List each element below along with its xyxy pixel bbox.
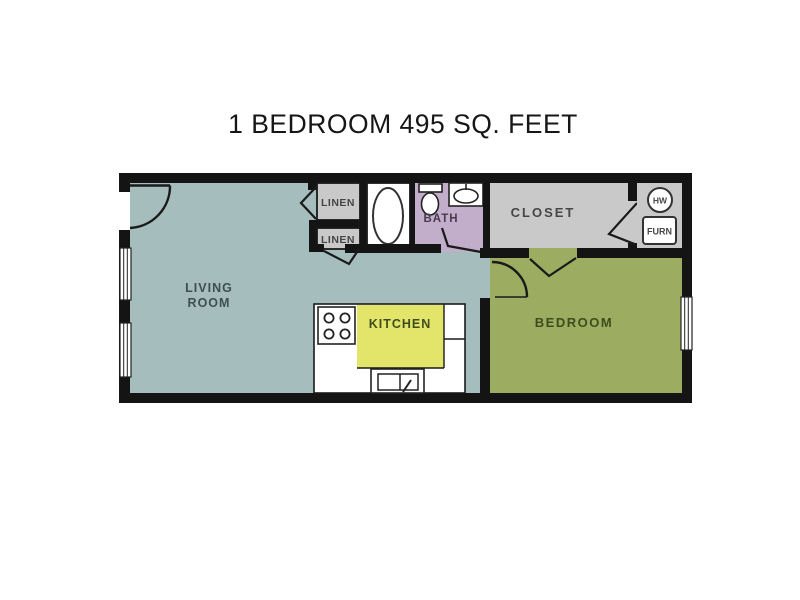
toilet-icon <box>422 193 439 215</box>
living-room-label-line2: ROOM <box>188 296 231 310</box>
bedroom-label: BEDROOM <box>535 315 613 330</box>
stove-burner <box>324 329 333 338</box>
bedroom-door-opening <box>480 258 490 298</box>
window-left-upper <box>120 248 131 300</box>
linen-bottom-label: LINEN <box>321 234 355 246</box>
entry-door-opening <box>119 192 130 230</box>
stove-burner <box>340 329 349 338</box>
window-right-bedroom <box>681 297 692 350</box>
kitchen-sink-icon <box>378 374 418 390</box>
wall-segment <box>483 183 490 252</box>
floorplan-image: 1 BEDROOM 495 SQ. FEET BATH CLOSET HW FU… <box>0 0 800 600</box>
linen-top-label: LINEN <box>321 197 355 209</box>
kitchen-floor <box>357 305 444 368</box>
bath-sink-icon <box>454 189 478 203</box>
stove-burner <box>340 313 349 322</box>
hot-water-label: HW <box>653 196 668 206</box>
living-room-label-line1: LIVING <box>185 281 233 295</box>
bath-label: BATH <box>423 213 458 225</box>
page-title: 1 BEDROOM 495 SQ. FEET <box>228 109 578 139</box>
kitchen-label: KITCHEN <box>369 317 432 331</box>
wall-segment <box>345 244 441 253</box>
bathtub-icon <box>373 188 403 244</box>
stove-icon <box>318 307 355 344</box>
furnace-label: FURN <box>647 227 672 237</box>
toilet-tank-icon <box>419 184 442 192</box>
wall-segment <box>360 183 367 252</box>
closet-label: CLOSET <box>511 205 576 220</box>
wall-segment <box>480 248 692 258</box>
wall-segment <box>410 183 415 252</box>
floorplan-page: 1 BEDROOM 495 SQ. FEET BATH CLOSET HW FU… <box>0 0 800 600</box>
stove-burner <box>324 313 333 322</box>
closet-door-opening <box>529 248 577 258</box>
window-left-lower <box>120 323 131 377</box>
